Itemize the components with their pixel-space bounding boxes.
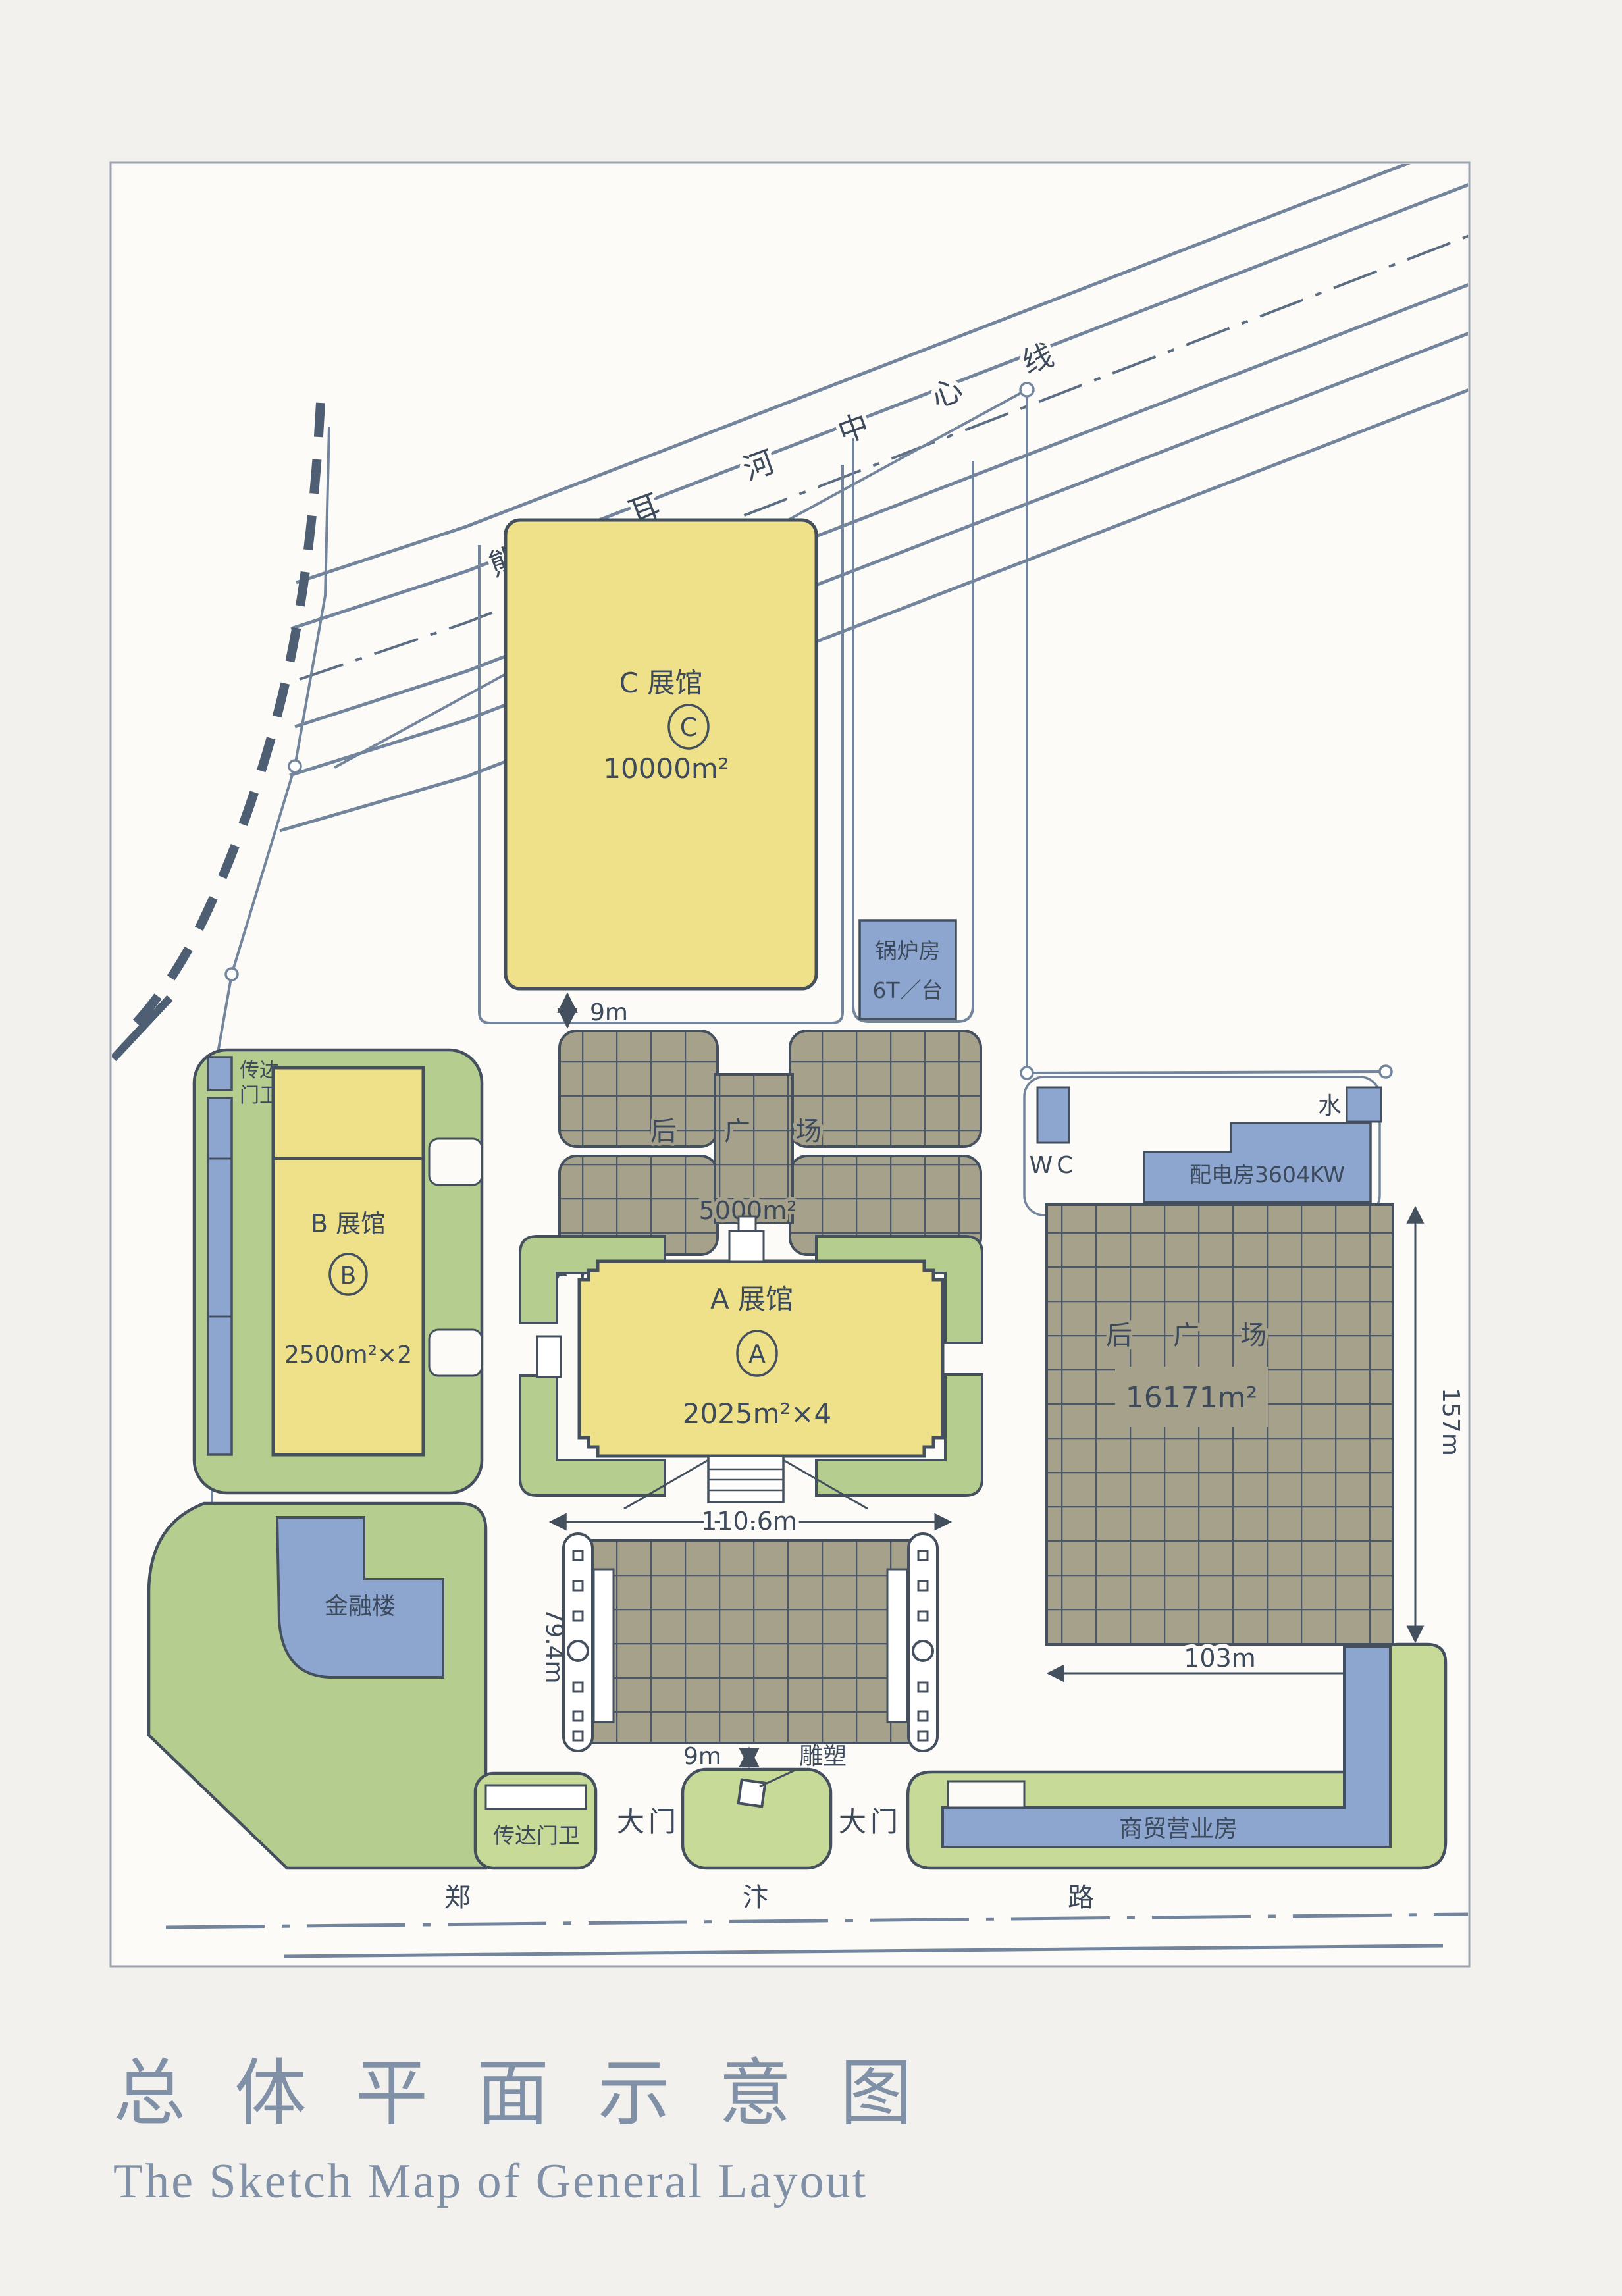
north-plaza-block	[560, 1031, 718, 1147]
hall-c-area: 10000m²	[603, 752, 729, 785]
road-name-char: 路	[1068, 1883, 1094, 1913]
hall-b-label: B 展馆	[311, 1209, 386, 1238]
boiler-house-label-1: 锅炉房	[876, 938, 941, 964]
gate-right-label: 大门	[839, 1806, 902, 1838]
east-plaza-name-char: 广	[1173, 1320, 1199, 1351]
boiler-house-label-2: 6T／台	[872, 978, 943, 1003]
front-plaza: 79.4m 9m	[540, 1534, 937, 1770]
hall-c: C 展馆 C 10000m²	[506, 520, 816, 989]
north-plaza-name-char: 后	[650, 1116, 677, 1147]
hall-a-area: 2025m²×4	[683, 1397, 832, 1430]
north-plaza-name-char: 广	[724, 1116, 750, 1147]
sculpture-label: 雕塑	[799, 1743, 847, 1770]
boundary-wall-building	[208, 1098, 232, 1455]
water-tank	[1347, 1087, 1381, 1122]
east-plaza-area: 16171m²	[1126, 1381, 1257, 1415]
dim-east-width: 103m	[1184, 1644, 1256, 1673]
boiler-house-building	[860, 920, 956, 1019]
east-plaza-name-char: 场	[1240, 1320, 1267, 1351]
sketch-map-canvas: 熊 耳 河 中 心 线	[0, 0, 1622, 2296]
gatehouse-s-building	[486, 1785, 586, 1809]
commerce-label: 商贸营业房	[1119, 1815, 1238, 1842]
power-house-label: 配电房3604KW	[1190, 1162, 1345, 1187]
dim-east-height: 157m	[1437, 1388, 1464, 1456]
gate-left-label: 大门	[617, 1806, 680, 1838]
gatehouse-s-label: 传达门卫	[493, 1823, 580, 1848]
north-plaza-name-char: 场	[795, 1116, 822, 1147]
hall-b-area: 2500m²×2	[284, 1342, 412, 1369]
east-plaza-name-char: 后	[1106, 1320, 1132, 1351]
commerce-notch	[948, 1781, 1024, 1808]
gatehouse-nw-building	[208, 1057, 232, 1090]
wc-building	[1037, 1087, 1069, 1143]
hall-a-north-porch	[729, 1231, 764, 1261]
hall-a-label: A 展馆	[710, 1283, 793, 1315]
road-name-char: 郑	[444, 1883, 471, 1913]
road-name-char: 汴	[743, 1883, 769, 1913]
hall-c-mark: C	[680, 713, 698, 742]
dim-9m-north: 9m	[590, 999, 628, 1026]
hall-b-mark: B	[340, 1263, 357, 1290]
dim-front-gap: 9m	[683, 1743, 721, 1770]
hall-b-complex: 传达 门卫 B 展馆 B 2500m²×2	[194, 1050, 482, 1493]
hall-a-north-porch-step	[739, 1216, 756, 1231]
water-label: 水	[1318, 1093, 1342, 1120]
front-plaza-wall-east	[887, 1569, 907, 1722]
dim-a-width: 110.6m	[701, 1507, 797, 1536]
hall-a-mark: A	[748, 1340, 766, 1369]
dim-front-depth: 79.4m	[540, 1607, 567, 1683]
landscape-gap	[429, 1330, 482, 1376]
wc-label: WC	[1030, 1152, 1078, 1179]
landscape-gap	[429, 1139, 482, 1185]
front-plaza-wall-west	[594, 1569, 614, 1722]
hall-a-west-porch	[537, 1336, 561, 1377]
hall-b-building	[273, 1068, 423, 1455]
title-block: 总体平面示意图 The Sketch Map of General Layout	[113, 2051, 961, 2208]
hall-c-label: C 展馆	[619, 667, 703, 699]
sculpture-base	[739, 1780, 766, 1807]
hall-a-complex: A 展馆 A 2025m²×4 110.6m	[520, 1216, 982, 1536]
front-plaza-paving	[588, 1540, 910, 1743]
title-chinese: 总体平面示意图	[113, 2051, 961, 2135]
finance-label: 金融楼	[325, 1593, 396, 1620]
title-english: The Sketch Map of General Layout	[113, 2154, 868, 2208]
